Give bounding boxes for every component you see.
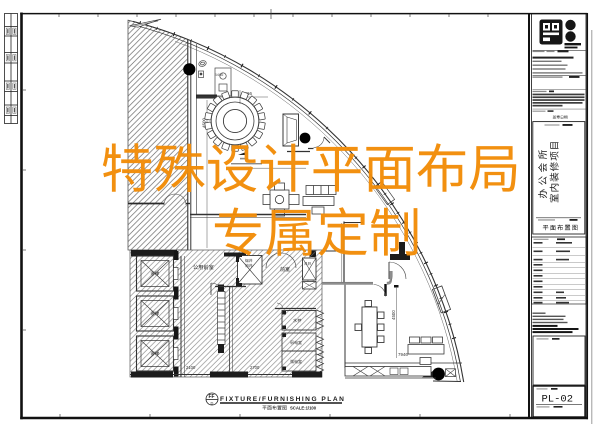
- svg-text:7946: 7946: [398, 352, 408, 357]
- svg-text:2100: 2100: [186, 365, 196, 370]
- svg-text:FF: FF: [209, 394, 215, 400]
- svg-text:3466: 3466: [215, 72, 225, 77]
- svg-text:4500: 4500: [391, 310, 396, 320]
- svg-text:PL-02: PL-02: [542, 394, 574, 406]
- svg-text:2700: 2700: [250, 365, 260, 370]
- svg-text:FIXTURE/FURNISHING PLAN: FIXTURE/FURNISHING PLAN: [220, 396, 345, 403]
- svg-text:SCALE:1/100: SCALE:1/100: [290, 406, 317, 411]
- svg-text:D: D: [211, 401, 214, 406]
